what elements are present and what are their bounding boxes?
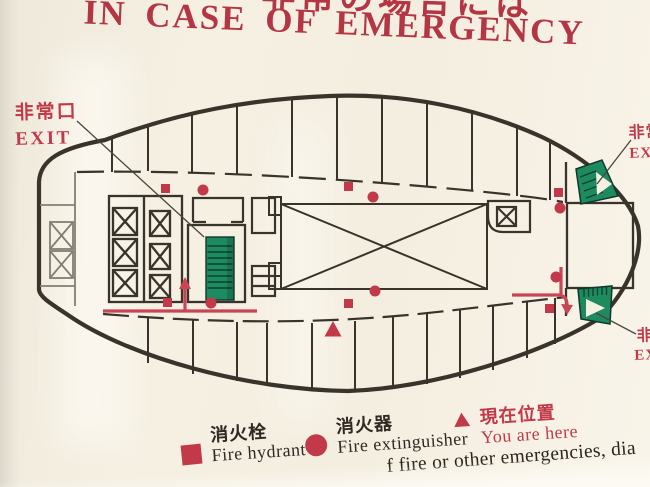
route-arrow-down: [561, 304, 573, 315]
legend-item-fire-hydrant: 消火栓 Fire hydrant: [180, 419, 307, 468]
exit-label-bottom-right: 非常口 EXIT: [633, 327, 650, 364]
bottom-corridor-wall: [103, 297, 567, 321]
exit-label-left-en: EXIT: [15, 128, 78, 149]
side-rooms: [252, 198, 275, 296]
elevator-bank: [109, 196, 182, 302]
exit-label-top-right-en: EXIT: [629, 145, 650, 162]
fire-extinguisher-icon: [304, 434, 327, 457]
central-hall: [269, 197, 487, 289]
exit-label-left-jp: 非常口: [14, 102, 77, 123]
center-stair-block: [188, 198, 245, 302]
top-rooms: [112, 95, 550, 200]
exit-label-top-right-jp: 非常口: [628, 124, 650, 142]
exit-label-top-right: 非常口 EXIT: [628, 124, 650, 162]
exit-label-left: 非常口 EXIT: [14, 102, 78, 149]
route-arrow-up: [179, 277, 191, 289]
fire-hydrant-icon: [181, 444, 203, 466]
emergency-floor-plan-sign: 非常の場合には IN CASE OF EMERGENCY 非常口 EXIT 非常…: [0, 0, 650, 487]
you-are-here-icon: [453, 412, 470, 427]
you-are-here-marker: [325, 321, 342, 337]
exit-label-bottom-right-en: EXIT: [634, 347, 650, 364]
exit-stair-top-right: [576, 160, 618, 204]
left-tip-room: [40, 172, 75, 306]
exit-label-bottom-right-jp: 非常口: [633, 327, 650, 345]
floor-plan-hull: [39, 96, 639, 391]
rounded-room: [488, 201, 530, 232]
